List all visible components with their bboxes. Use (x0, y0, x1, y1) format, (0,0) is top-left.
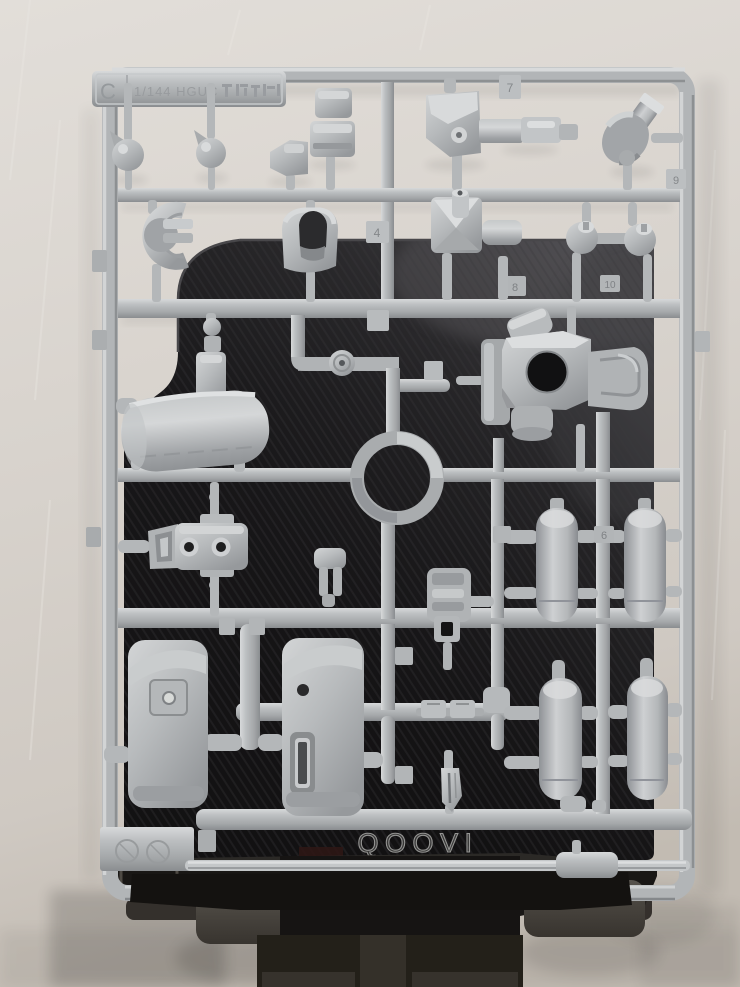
svg-text:C: C (100, 79, 116, 104)
svg-text:10: 10 (604, 280, 616, 291)
svg-text:9: 9 (673, 175, 679, 187)
svg-text:6: 6 (601, 530, 607, 542)
svg-text:4: 4 (374, 226, 381, 240)
svg-text:QOOVI: QOOVI (357, 828, 478, 858)
svg-text:7: 7 (507, 81, 514, 95)
svg-text:1/144 HGUC: 1/144 HGUC (134, 84, 218, 99)
svg-text:8: 8 (512, 282, 518, 294)
